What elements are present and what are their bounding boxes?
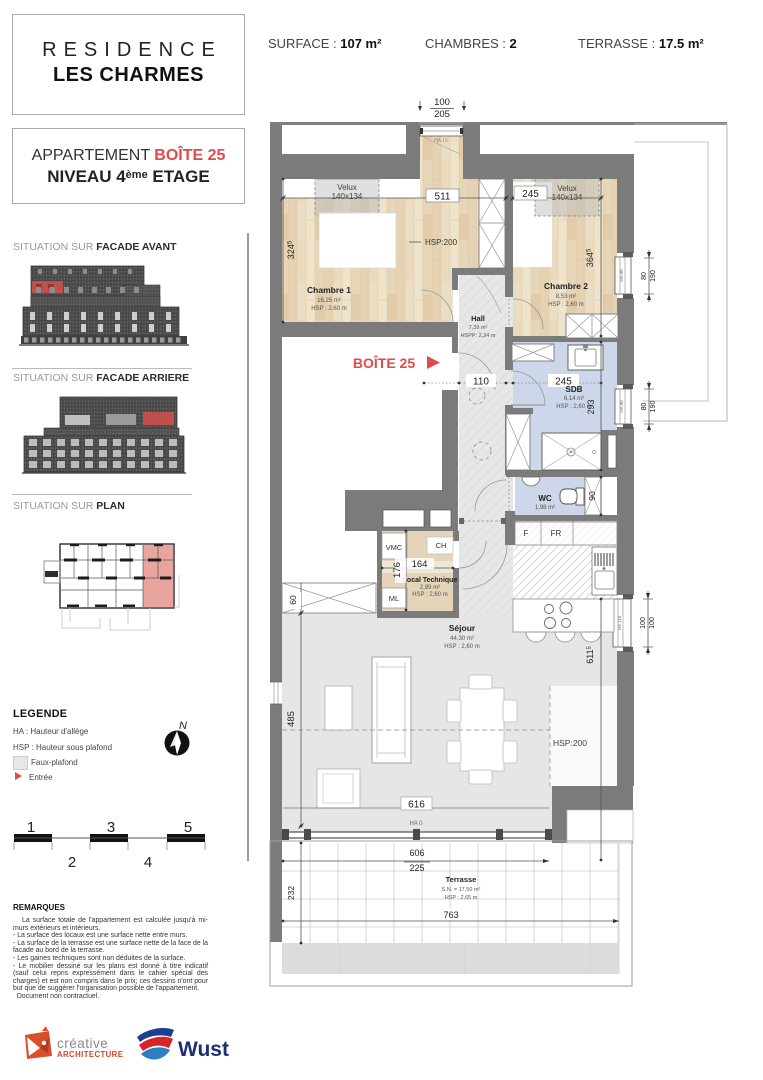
svg-text:HSP:200: HSP:200 (553, 738, 587, 748)
svg-text:FR: FR (551, 529, 562, 538)
svg-text:VMC: VMC (386, 543, 403, 552)
svg-text:245: 245 (522, 189, 539, 200)
svg-text:763: 763 (443, 910, 458, 920)
svg-text:créative: créative (57, 1036, 108, 1051)
svg-text:164: 164 (412, 559, 428, 570)
svg-text:HA 0: HA 0 (409, 821, 423, 827)
svg-text:140x134: 140x134 (552, 193, 583, 202)
svg-text:3: 3 (107, 819, 115, 836)
svg-text:140x134: 140x134 (332, 192, 363, 201)
svg-text:80: 80 (641, 272, 648, 280)
svg-text:225: 225 (409, 863, 424, 873)
svg-text:176: 176 (392, 562, 403, 578)
svg-text:110: 110 (473, 377, 489, 388)
svg-text:HSP : 2,60 m: HSP : 2,60 m (548, 302, 584, 308)
svg-text:16,25 m²: 16,25 m² (317, 298, 341, 304)
svg-text:190: 190 (650, 401, 657, 413)
svg-text:HSP : 2,60 m: HSP : 2,60 m (311, 306, 347, 312)
svg-text:CH: CH (436, 541, 447, 550)
svg-text:HSP : 2,60 m: HSP : 2,60 m (444, 644, 480, 650)
svg-text:44,30 m²: 44,30 m² (450, 636, 474, 642)
svg-text:7,39 m²: 7,39 m² (469, 325, 488, 331)
svg-text:1,98 m²: 1,98 m² (535, 505, 555, 511)
svg-text:1: 1 (27, 819, 35, 836)
svg-text:Hall: Hall (471, 314, 485, 323)
svg-text:Velux: Velux (337, 183, 357, 192)
svg-text:HSP:200: HSP:200 (425, 238, 458, 247)
svg-text:8,53 m²: 8,53 m² (556, 294, 576, 300)
svg-text:5: 5 (184, 819, 192, 836)
svg-text:232: 232 (286, 886, 296, 900)
svg-text:60: 60 (288, 595, 298, 605)
svg-text:HSPP: 2,34 m: HSPP: 2,34 m (461, 333, 496, 339)
svg-text:Séjour: Séjour (449, 623, 476, 633)
svg-text:606: 606 (409, 848, 424, 858)
svg-text:2,89 m²: 2,89 m² (420, 585, 440, 591)
svg-text:100: 100 (649, 617, 656, 629)
svg-text:SDB: SDB (566, 385, 583, 394)
svg-text:616: 616 (408, 800, 425, 811)
svg-text:F: F (524, 529, 529, 538)
svg-text:100: 100 (640, 617, 647, 629)
svg-text:80: 80 (641, 403, 648, 411)
svg-text:HA 110: HA 110 (617, 615, 622, 630)
svg-text:2: 2 (68, 854, 76, 871)
svg-text:Velux: Velux (557, 184, 577, 193)
svg-text:190: 190 (650, 270, 657, 282)
svg-text:ML: ML (389, 594, 399, 603)
svg-text:HSP : 2,65 m: HSP : 2,65 m (445, 895, 478, 901)
svg-text:HSP : 2,60 m: HSP : 2,60 m (412, 592, 448, 598)
svg-text:Wust: Wust (178, 1038, 229, 1061)
svg-text:Chambre 1: Chambre 1 (307, 285, 351, 295)
svg-text:S.N. = 17,50 m²: S.N. = 17,50 m² (442, 887, 481, 893)
svg-text:N: N (179, 720, 187, 732)
svg-text:Chambre 2: Chambre 2 (544, 281, 588, 291)
svg-text:4: 4 (144, 854, 152, 871)
svg-text:WC: WC (538, 494, 552, 503)
svg-text:Local Technique: Local Technique (403, 577, 458, 584)
svg-text:90: 90 (587, 491, 597, 501)
svg-text:BOÎTE 25: BOÎTE 25 (353, 354, 415, 371)
svg-text:6,14 m²: 6,14 m² (564, 396, 584, 402)
svg-text:205: 205 (434, 109, 450, 120)
svg-text:ARCHITECTURE: ARCHITECTURE (57, 1050, 123, 1059)
svg-text:HA 90: HA 90 (619, 269, 624, 282)
svg-text:HA 90: HA 90 (619, 400, 624, 413)
svg-text:100: 100 (434, 97, 450, 108)
svg-text:HSP : 2,60 m: HSP : 2,60 m (556, 404, 592, 410)
svg-text:Terrasse: Terrasse (446, 875, 477, 884)
svg-text:485: 485 (286, 711, 297, 727)
svg-text:511: 511 (435, 192, 451, 203)
